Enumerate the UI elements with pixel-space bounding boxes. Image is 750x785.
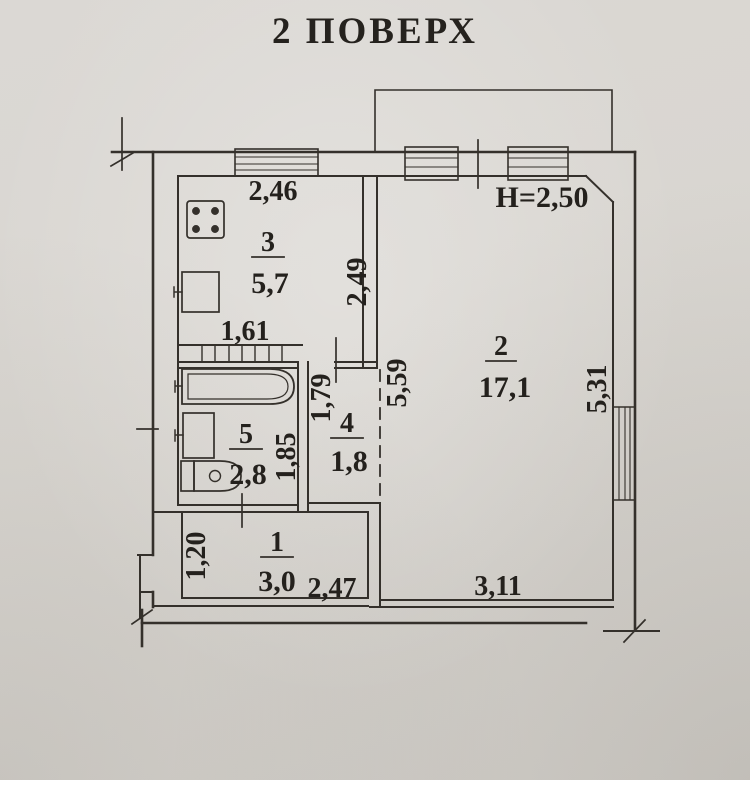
kitchen-sink-icon — [174, 272, 219, 312]
room-kitchen-number: 3 — [261, 227, 275, 258]
dim-bath-block-width: 1,61 — [221, 316, 270, 347]
room-entry-area: 3,0 — [258, 565, 296, 598]
washbasin-icon — [175, 413, 214, 458]
dim-living-left-depth: 5,59 — [382, 359, 413, 408]
page-title: 2 ПОВЕРХ — [0, 10, 750, 53]
room-kitchen-area: 5,7 — [251, 267, 289, 300]
room-bathroom-area: 2,8 — [229, 458, 267, 491]
room-hall-area: 1,8 — [330, 445, 368, 478]
dim-entry-width: 2,47 — [308, 573, 357, 604]
room-living-area: 17,1 — [479, 371, 532, 404]
ceiling-height-note: H=2,50 — [496, 181, 589, 214]
living-side-window — [613, 407, 635, 500]
balcony-outline — [375, 90, 612, 152]
dim-entry-door: 1,20 — [181, 532, 212, 581]
bathtub-icon — [175, 369, 294, 404]
dim-living-width: 3,11 — [474, 571, 521, 602]
room-living-number: 2 — [494, 331, 508, 362]
floor-plan-svg: H=2,50 3 5,7 2 17,1 5 2,8 4 1,8 1 3,0 2,… — [0, 0, 750, 780]
room-bathroom-number: 5 — [239, 419, 253, 450]
dim-kitchen-width: 2,46 — [249, 176, 298, 207]
room-hall-number: 4 — [340, 408, 354, 439]
stove-icon — [187, 201, 224, 238]
dim-living-right-depth: 5,31 — [582, 365, 613, 414]
entrance-opening — [138, 555, 153, 618]
room-entry-number: 1 — [270, 527, 284, 558]
dim-hall-depth: 1,79 — [306, 374, 337, 423]
vent-block-icon — [202, 345, 282, 362]
dim-kitchen-depth: 2,49 — [342, 258, 373, 307]
dim-bathroom-depth: 1,85 — [271, 433, 302, 482]
floor-plan-page: 2 ПОВЕРХ — [0, 0, 750, 780]
